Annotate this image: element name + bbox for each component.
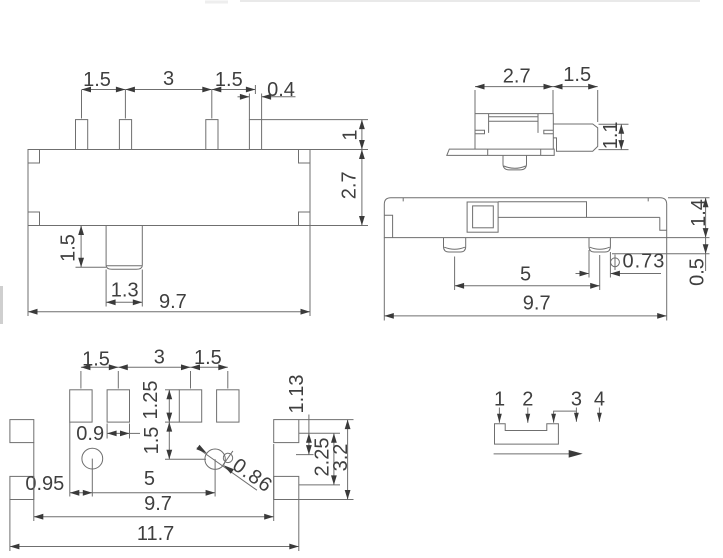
svg-text:3.2: 3.2: [330, 444, 352, 472]
svg-text:5: 5: [520, 264, 531, 286]
svg-text:1.1: 1.1: [600, 121, 622, 149]
svg-text:1.5: 1.5: [82, 349, 110, 371]
svg-text:0.5: 0.5: [687, 258, 709, 286]
svg-text:9.7: 9.7: [144, 493, 172, 515]
svg-text:2.7: 2.7: [339, 171, 361, 199]
svg-text:9.7: 9.7: [159, 291, 187, 313]
svg-text:0.95: 0.95: [25, 473, 64, 495]
svg-text:1.25: 1.25: [140, 381, 162, 420]
svg-text:1.5: 1.5: [194, 347, 222, 369]
svg-text:4: 4: [594, 389, 605, 411]
svg-text:1: 1: [494, 389, 505, 411]
svg-text:1.5: 1.5: [83, 69, 111, 91]
svg-text:1.5: 1.5: [563, 64, 591, 86]
svg-text:0.86: 0.86: [228, 454, 276, 497]
svg-text:1.13: 1.13: [286, 375, 308, 414]
svg-text:3: 3: [571, 389, 582, 411]
svg-text:1.3: 1.3: [111, 280, 139, 302]
svg-text:1: 1: [339, 129, 361, 140]
svg-text:0.73: 0.73: [623, 251, 666, 273]
svg-text:1.4: 1.4: [688, 199, 710, 227]
svg-text:11.7: 11.7: [137, 523, 174, 545]
svg-text:0.4: 0.4: [267, 79, 295, 101]
svg-text:1.5: 1.5: [57, 234, 79, 262]
svg-text:2: 2: [522, 389, 533, 411]
svg-text:1.5: 1.5: [141, 427, 163, 455]
svg-text:2.7: 2.7: [503, 66, 531, 88]
svg-text:3: 3: [154, 347, 165, 369]
svg-text:3: 3: [163, 68, 174, 90]
svg-text:1.5: 1.5: [215, 69, 243, 91]
svg-text:0.9: 0.9: [76, 423, 104, 445]
svg-text:9.7: 9.7: [523, 293, 551, 315]
svg-text:5: 5: [144, 468, 155, 490]
